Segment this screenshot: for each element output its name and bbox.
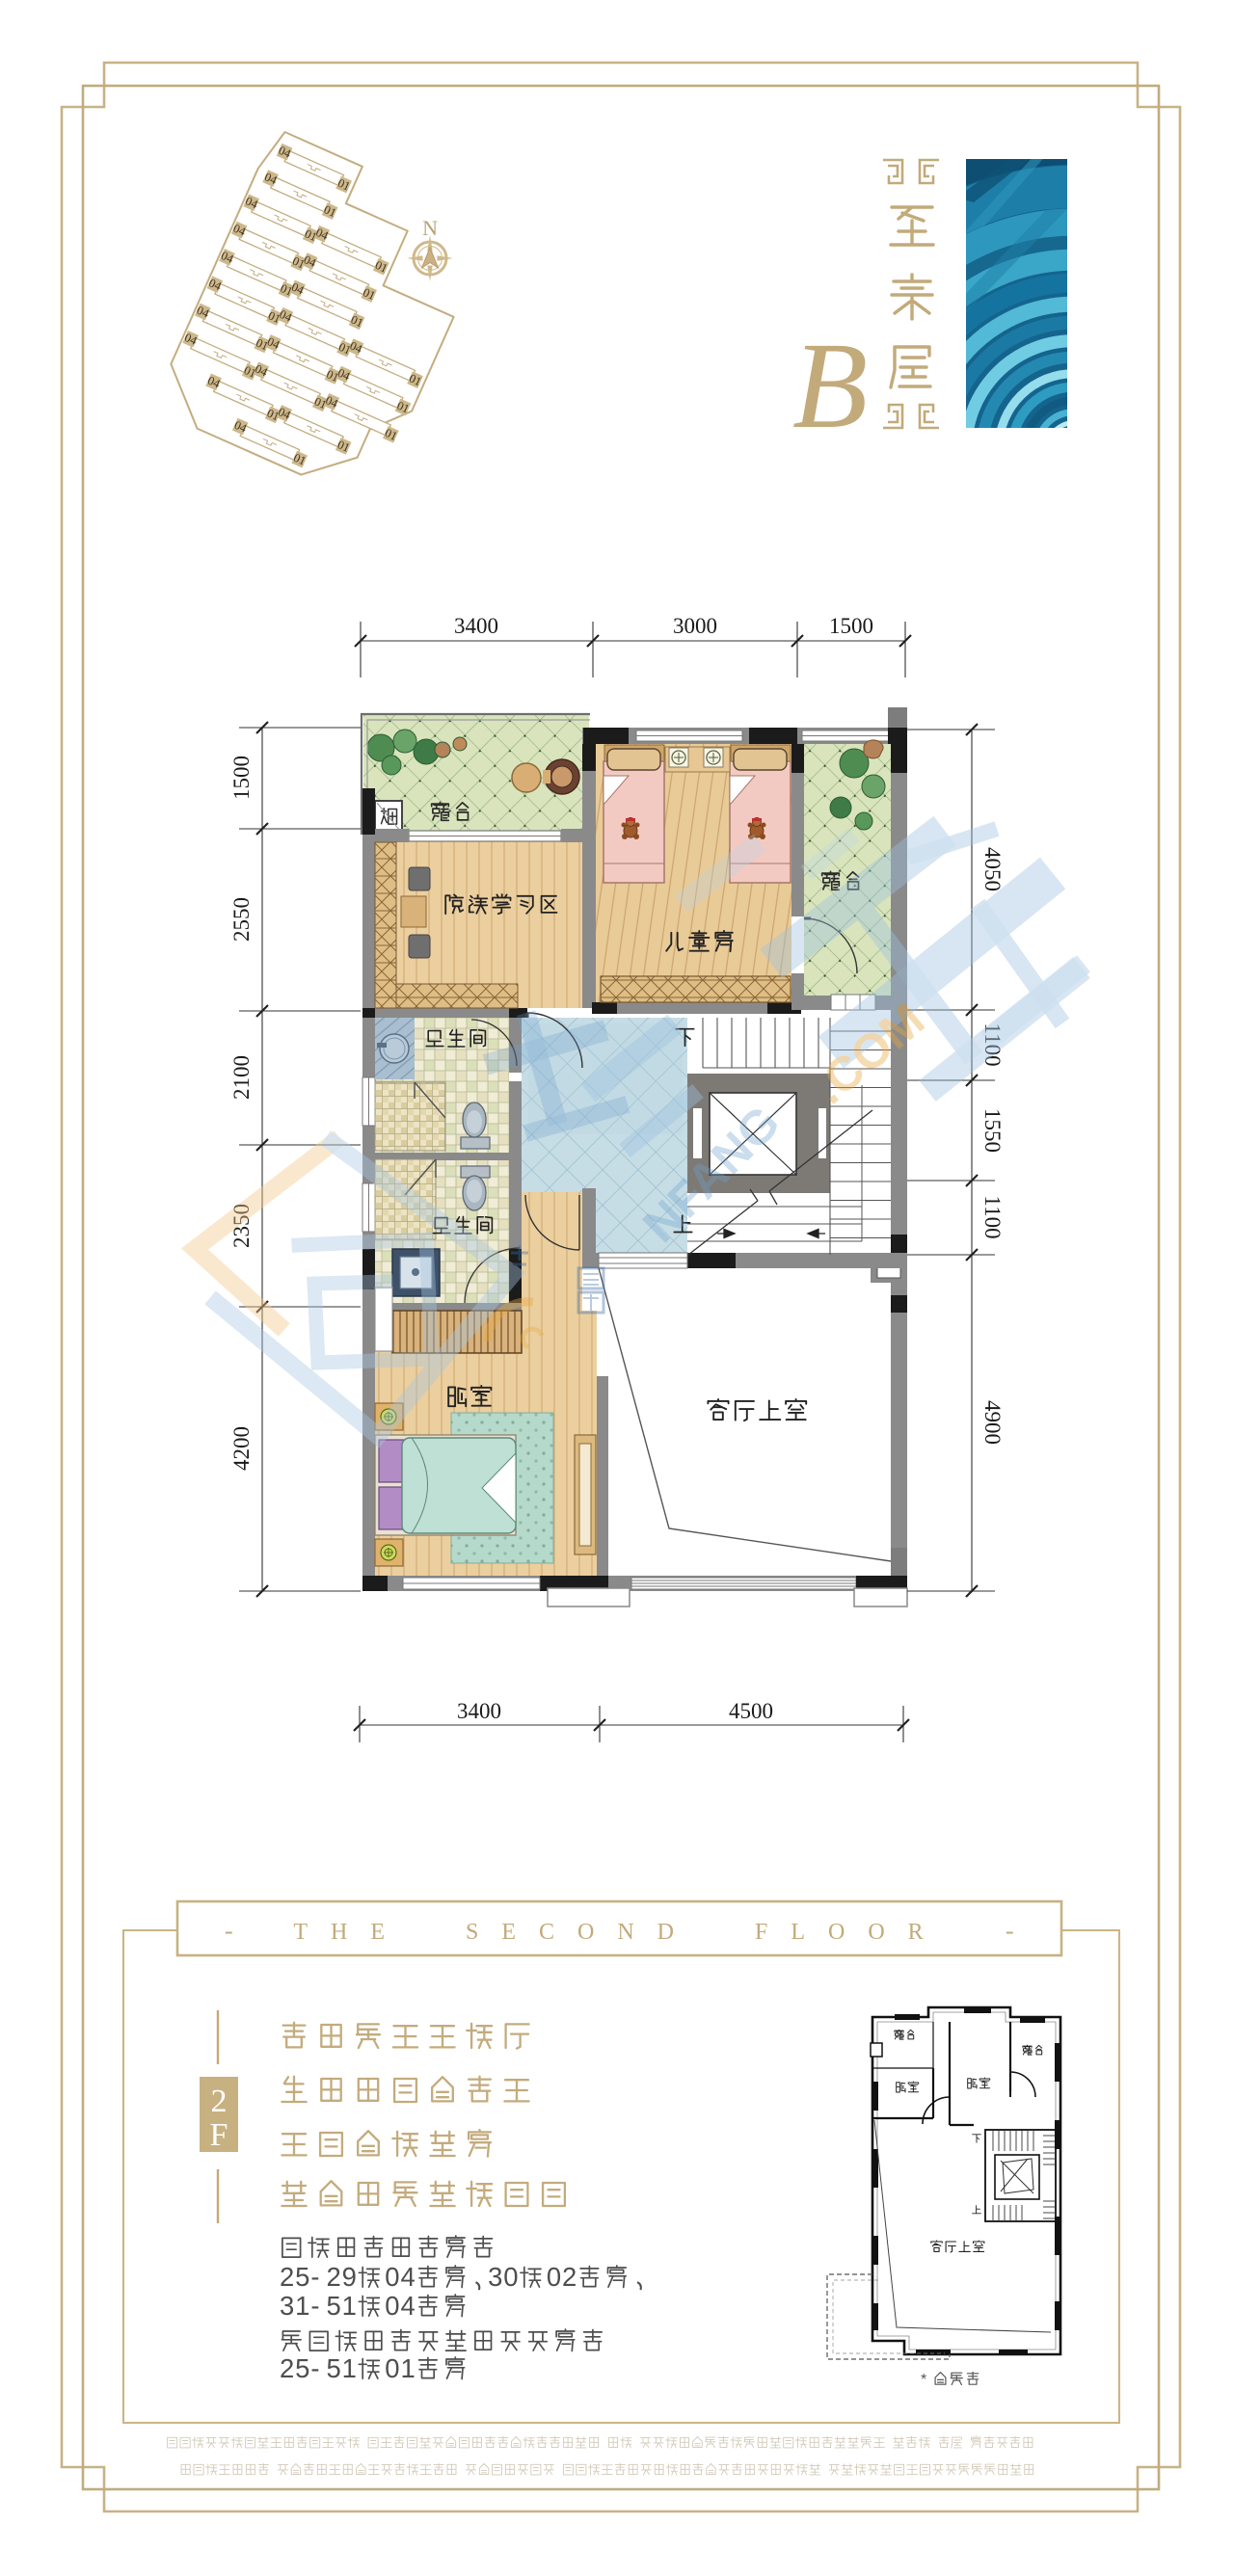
svg-text:1: 1 [342,2353,357,2383]
svg-text:*: * [921,2372,926,2388]
svg-text:1100: 1100 [980,1195,1005,1238]
svg-text:3400: 3400 [454,614,498,638]
svg-text:2: 2 [280,2353,294,2383]
svg-text:3000: 3000 [673,614,717,638]
svg-text:N: N [422,216,438,240]
svg-text:1500: 1500 [229,756,254,800]
svg-text:4050: 4050 [980,847,1005,891]
svg-text:-: - [310,2353,319,2383]
svg-text:THE SECOND FLOOR: THE SECOND FLOOR [293,1920,946,1945]
svg-text:-: - [225,1917,233,1945]
svg-text:4900: 4900 [980,1400,1005,1445]
svg-text:5: 5 [295,2353,309,2383]
svg-text:3: 3 [280,2291,294,2321]
svg-text:-: - [310,2262,319,2292]
svg-text:0: 0 [503,2262,518,2292]
svg-text:4500: 4500 [729,1699,773,1723]
svg-text:5: 5 [295,2262,309,2292]
svg-text:4200: 4200 [229,1426,254,1471]
svg-text:2: 2 [211,2084,228,2119]
svg-text:5: 5 [327,2291,341,2321]
svg-text:1: 1 [295,2291,309,2321]
svg-text:1500: 1500 [829,614,873,638]
svg-text:2: 2 [327,2262,341,2292]
svg-text:4: 4 [400,2262,415,2292]
svg-text:0: 0 [385,2353,399,2383]
svg-text:3400: 3400 [457,1699,501,1723]
svg-text:0: 0 [385,2262,399,2292]
svg-text:0: 0 [547,2262,561,2292]
svg-text:9: 9 [342,2262,357,2292]
svg-text:1: 1 [342,2291,357,2321]
svg-text:5: 5 [327,2353,341,2383]
svg-text:B: B [792,317,868,454]
svg-text:F: F [210,2117,228,2153]
svg-text:2100: 2100 [229,1055,254,1100]
svg-text:2: 2 [280,2262,294,2292]
svg-text:1: 1 [400,2353,415,2383]
svg-text:2550: 2550 [229,897,254,942]
svg-text:4: 4 [400,2291,415,2321]
svg-text:0: 0 [385,2291,399,2321]
svg-text:3: 3 [488,2262,502,2292]
svg-text:-: - [310,2291,319,2321]
svg-text:1550: 1550 [980,1108,1005,1153]
svg-text:2: 2 [562,2262,577,2292]
svg-text:-: - [1006,1917,1014,1945]
